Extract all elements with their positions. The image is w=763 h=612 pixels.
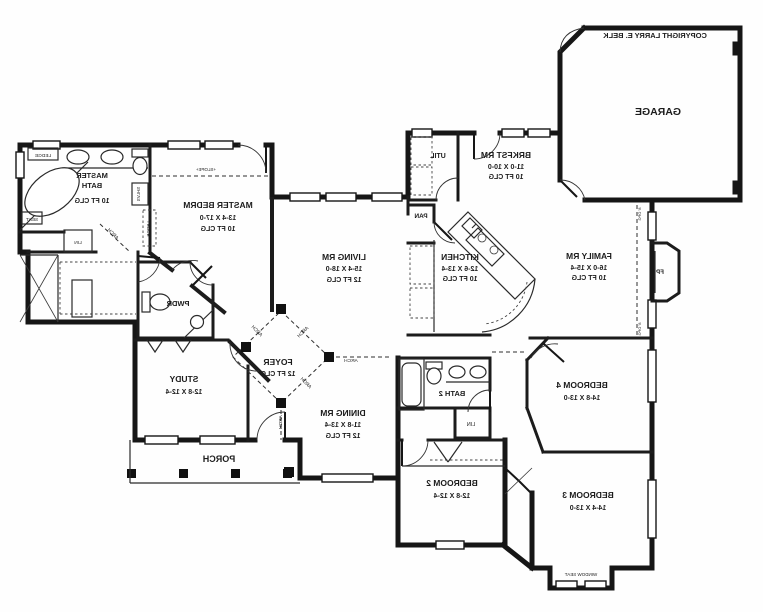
clg-label-master-bedrm: 10 FT CLG: [200, 226, 236, 233]
exterior-walls: [20, 28, 740, 588]
shlvs-label: SHLVS: [136, 187, 141, 201]
study-window-marks: [147, 340, 191, 352]
opening-label-top: 8' OPG: [637, 208, 642, 221]
seat-label: SEAT: [26, 217, 38, 223]
room-label-bath2: BATH 2: [439, 389, 466, 398]
room-label-master-bedrm: MASTER BEDRM: [183, 200, 252, 210]
clg-label-master-bath: 10 FT CLG: [74, 198, 110, 205]
arch-label-se: ARCH: [298, 376, 312, 390]
floorplan-drawing: COPYRIGHT LARRY E. BELK GARAGE BRKFST RM…: [0, 0, 763, 612]
labels: COPYRIGHT LARRY E. BELK GARAGE BRKFST RM…: [26, 31, 707, 577]
bath2-fixtures: [399, 359, 490, 410]
clg-label-living: 12 FT CLG: [326, 277, 362, 284]
room-label-living: LIVING RM: [322, 252, 366, 262]
window-seat-label: WINDOW SEAT: [565, 572, 598, 577]
clg-label-kitchen: 10 FT CLG: [442, 276, 478, 283]
clg-label-foyer: 12 FT CLG: [260, 371, 296, 378]
copyright-text: COPYRIGHT LARRY E. BELK: [603, 31, 707, 40]
doors: [138, 28, 585, 466]
utility-fixtures: [411, 137, 432, 195]
floorplan-page: COPYRIGHT LARRY E. BELK GARAGE BRKFST RM…: [0, 0, 763, 612]
dim-label-bed4: 14-8 X 13-0: [564, 395, 601, 402]
dim-label-bed2: 12-8 X 12-4: [434, 493, 471, 500]
room-label-master-bath-1: MASTER: [76, 171, 108, 180]
room-label-study: STUDY: [169, 374, 198, 384]
room-label-kitchen: KITCHEN: [441, 252, 479, 262]
room-label-bed2: BEDROOM 2: [426, 478, 478, 488]
room-label-pwdr: PWDR: [166, 299, 189, 308]
opening-label-bottom: 8' OPG: [637, 323, 642, 336]
arch-label-east: ARCH: [344, 358, 358, 364]
dim-label-living: 15-4 X 18-0: [326, 266, 363, 273]
room-label-foyer: FOYER: [263, 357, 292, 367]
fireplace: [652, 243, 679, 301]
slope-label: +SLOPE+: [195, 167, 216, 172]
dim-label-brkfst: 11-0 X 10-0: [488, 164, 524, 171]
dim-label-kitchen: 12-6 X 13-4: [442, 266, 479, 273]
room-label-dining: DINING RM: [320, 408, 365, 418]
clg-label-brkfst: 10 FT CLG: [488, 174, 524, 181]
clg-label-family: 10 FT CLG: [571, 275, 607, 282]
dim-label-dining: 11-8 X 13-4: [325, 422, 361, 429]
room-label-brkfst: BRKFST RM: [481, 150, 531, 160]
room-label-pan: PAN: [414, 213, 428, 220]
dim-label-study: 12-8 X 12-4: [166, 389, 203, 396]
room-label-master-bath-2: BATH: [82, 181, 102, 190]
room-label-garage: GARAGE: [635, 106, 681, 118]
dim-label-family: 16-0 X 15-4: [571, 265, 608, 272]
lin-label-master: LIN: [74, 240, 82, 246]
arch-label-masterhall: ARCH: [105, 227, 119, 241]
dim-label-master-bedrm: 13-4 X 17-0: [200, 215, 237, 222]
bed2-closet-doors: [402, 442, 505, 466]
room-label-bed3: BEDROOM 3: [562, 490, 614, 500]
arch-label-south: ARCH: [278, 415, 284, 429]
dim-label-bed3: 14-4 X 13-0: [570, 505, 607, 512]
ledge-label-vertical: LEDGE: [146, 221, 151, 236]
lin-label-hall: LIN: [467, 422, 476, 428]
clg-label-dining: 12 FT CLG: [325, 433, 361, 440]
room-label-family: FAMILY RM: [566, 251, 612, 261]
room-label-util: UTIL: [430, 153, 446, 160]
room-label-bed4: BEDROOM 4: [556, 380, 608, 390]
fireplace-label: FP: [656, 270, 664, 276]
arch-label-nw: ARCH: [249, 324, 263, 338]
room-label-porch: PORCH: [203, 454, 236, 464]
ledge-label: LEDGE: [35, 153, 51, 159]
